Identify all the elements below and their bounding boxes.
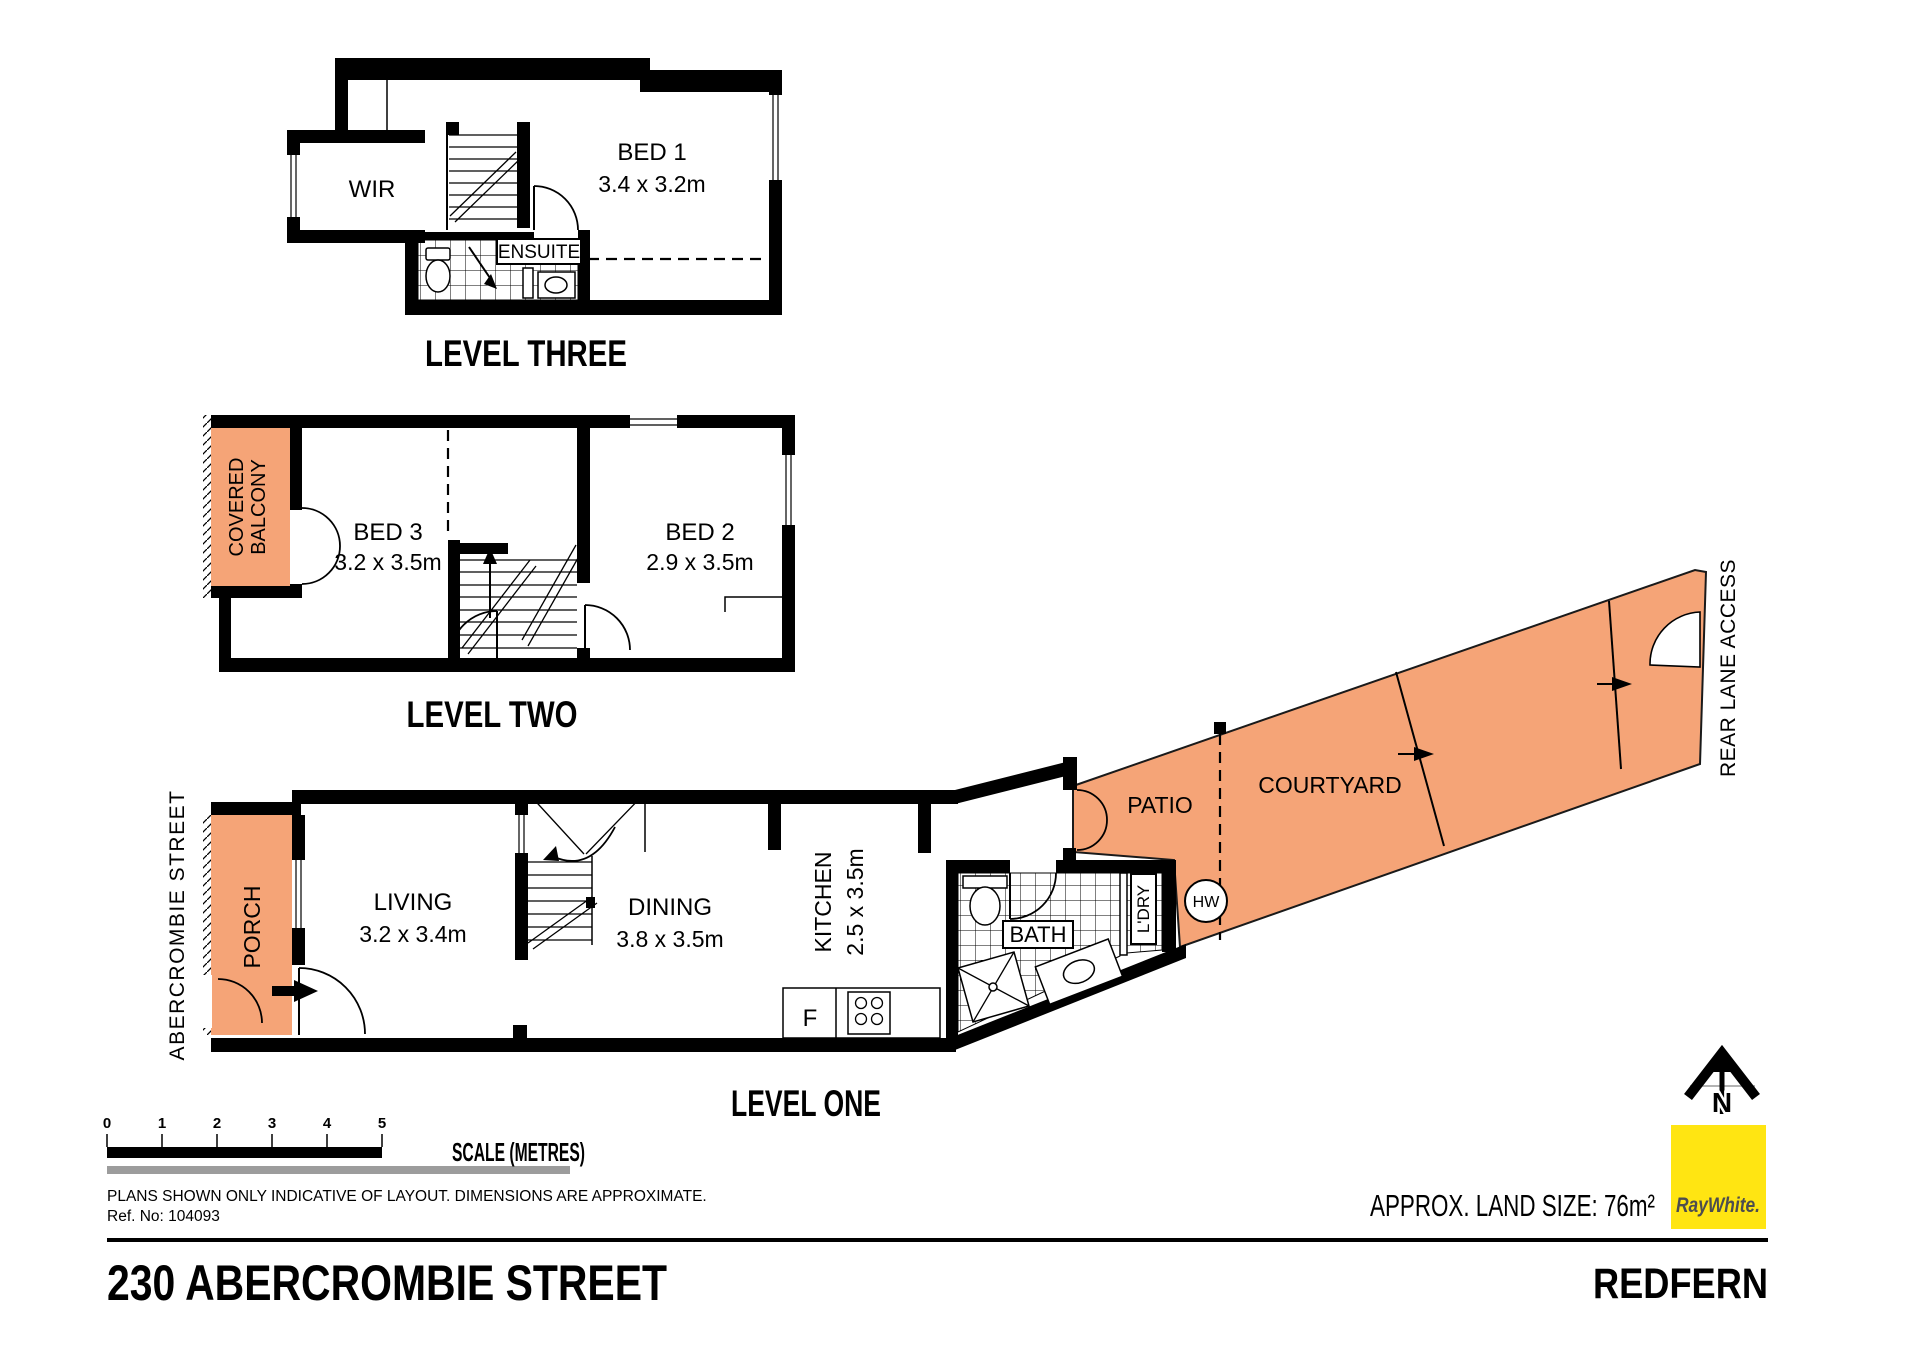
level-one-plan: F BATH L'DRY (166, 559, 1740, 1124)
north-arrow-icon: N (1688, 1052, 1756, 1118)
bed3-dims: 3.2 x 3.5m (334, 549, 441, 575)
courtyard-label: COURTYARD (1258, 772, 1402, 798)
kitchen-label: KITCHEN (810, 852, 836, 953)
door-arc-icon (450, 605, 630, 658)
level-two-plan: COVERED BALCONY BED 3 3.2 x 3.5m BED 2 2… (203, 415, 795, 735)
bed1-label: BED 1 (617, 139, 686, 166)
scale-tick-3: 3 (268, 1115, 276, 1132)
stairs-level-two (460, 545, 582, 654)
bed1-dims: 3.4 x 3.2m (598, 171, 705, 197)
scale-gray-bar (107, 1166, 570, 1174)
disclaimer-text: PLANS SHOWN ONLY INDICATIVE OF LAYOUT. D… (107, 1188, 707, 1205)
level-two-title: LEVEL TWO (407, 694, 578, 735)
kitchen-counter: F (783, 988, 940, 1038)
stair-down-arrow-icon (543, 846, 559, 861)
floorplan-page: ENSUITE WIR BED 1 3.4 x 3.2m LEVEL THREE (0, 0, 1920, 1357)
north-label: N (1712, 1087, 1732, 1118)
balcony-label-line2: BALCONY (248, 459, 270, 555)
toilet-tank-icon (963, 876, 1007, 888)
laundry-label: L'DRY (1134, 885, 1153, 933)
rear-lane-label-group: REAR LANE ACCESS (1717, 559, 1740, 777)
level-one-title: LEVEL ONE (731, 1083, 881, 1124)
floorplan-canvas: ENSUITE WIR BED 1 3.4 x 3.2m LEVEL THREE (0, 0, 1920, 1357)
dining-dims: 3.8 x 3.5m (616, 926, 723, 952)
patio-label: PATIO (1127, 792, 1193, 818)
balcony-hatch-edge (203, 415, 211, 598)
scale-label: SCALE (METRES) (452, 1137, 585, 1167)
land-size-text: APPROX. LAND SIZE: 76m² (1370, 1188, 1655, 1223)
level-three-title: LEVEL THREE (425, 333, 627, 374)
scale-tick-5: 5 (378, 1115, 386, 1132)
entry-arrow-icon (294, 980, 318, 1002)
bed2-label: BED 2 (665, 519, 734, 546)
living-label: LIVING (374, 889, 453, 916)
kitchen-label-group: KITCHEN 2.5 x 3.5m (810, 848, 868, 955)
ensuite-room: ENSUITE (418, 186, 590, 300)
shower-drain-icon (989, 983, 997, 991)
street-label-group: ABERCROMBIE STREET (166, 790, 189, 1061)
scale-black-bar (107, 1147, 382, 1158)
patio-boundary-post (1214, 722, 1226, 734)
scale-tick-2: 2 (213, 1115, 221, 1132)
door-arc-icon (534, 186, 578, 230)
hw-label: HW (1193, 894, 1221, 911)
scale-tick-0: 0 (103, 1115, 111, 1132)
hot-water-unit: HW (1185, 880, 1227, 922)
fridge-label: F (803, 1005, 818, 1032)
living-dims: 3.2 x 3.4m (359, 921, 466, 947)
balcony-label-line1: COVERED (226, 458, 248, 557)
porch-label-group: PORCH (239, 885, 265, 968)
bed2-dims: 2.9 x 3.5m (646, 549, 753, 575)
footer-address: 230 ABERCROMBIE STREET (107, 1255, 667, 1311)
toilet-icon (426, 260, 450, 292)
footer-divider (107, 1238, 1768, 1242)
dining-label: DINING (628, 894, 712, 921)
window-icon (630, 415, 795, 525)
scale-bar: 0 1 2 3 4 5 SCALE (METRES) (103, 1115, 585, 1174)
scale-tick-1: 1 (158, 1115, 166, 1132)
ensuite-label: ENSUITE (498, 242, 580, 263)
toilet-tank-icon (426, 248, 450, 260)
raywhite-logo-text: RayWhite. (1676, 1194, 1760, 1217)
level-three-plan: ENSUITE WIR BED 1 3.4 x 3.2m LEVEL THREE (287, 58, 782, 374)
balcony-label-group: COVERED BALCONY (226, 458, 270, 557)
shower-screen-icon (523, 268, 533, 298)
bed2-robe (725, 597, 788, 612)
wir-label: WIR (349, 176, 396, 203)
rear-lane-label: REAR LANE ACCESS (1717, 559, 1740, 777)
bath-label: BATH (1009, 922, 1066, 947)
reference-number: Ref. No: 104093 (107, 1208, 220, 1225)
basin-icon (545, 277, 567, 293)
porch-label: PORCH (239, 885, 265, 968)
toilet-icon (970, 887, 1000, 925)
scale-tick-4: 4 (323, 1115, 332, 1132)
bed3-label: BED 3 (353, 519, 422, 546)
kitchen-dims: 2.5 x 3.5m (842, 848, 868, 955)
street-label: ABERCROMBIE STREET (166, 790, 189, 1061)
raywhite-logo: RayWhite. (1671, 1125, 1766, 1229)
footer-suburb: REDFERN (1593, 1260, 1768, 1308)
